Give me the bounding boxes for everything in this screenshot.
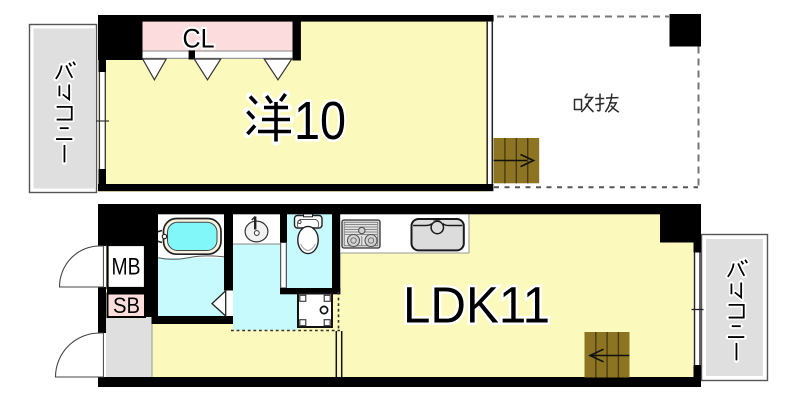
svg-text:MB: MB [112,254,141,281]
svg-text:LDK11: LDK11 [403,276,550,333]
svg-text:CL: CL [183,24,215,54]
svg-text:10: 10 [294,91,346,151]
svg-text:SB: SB [113,293,140,318]
